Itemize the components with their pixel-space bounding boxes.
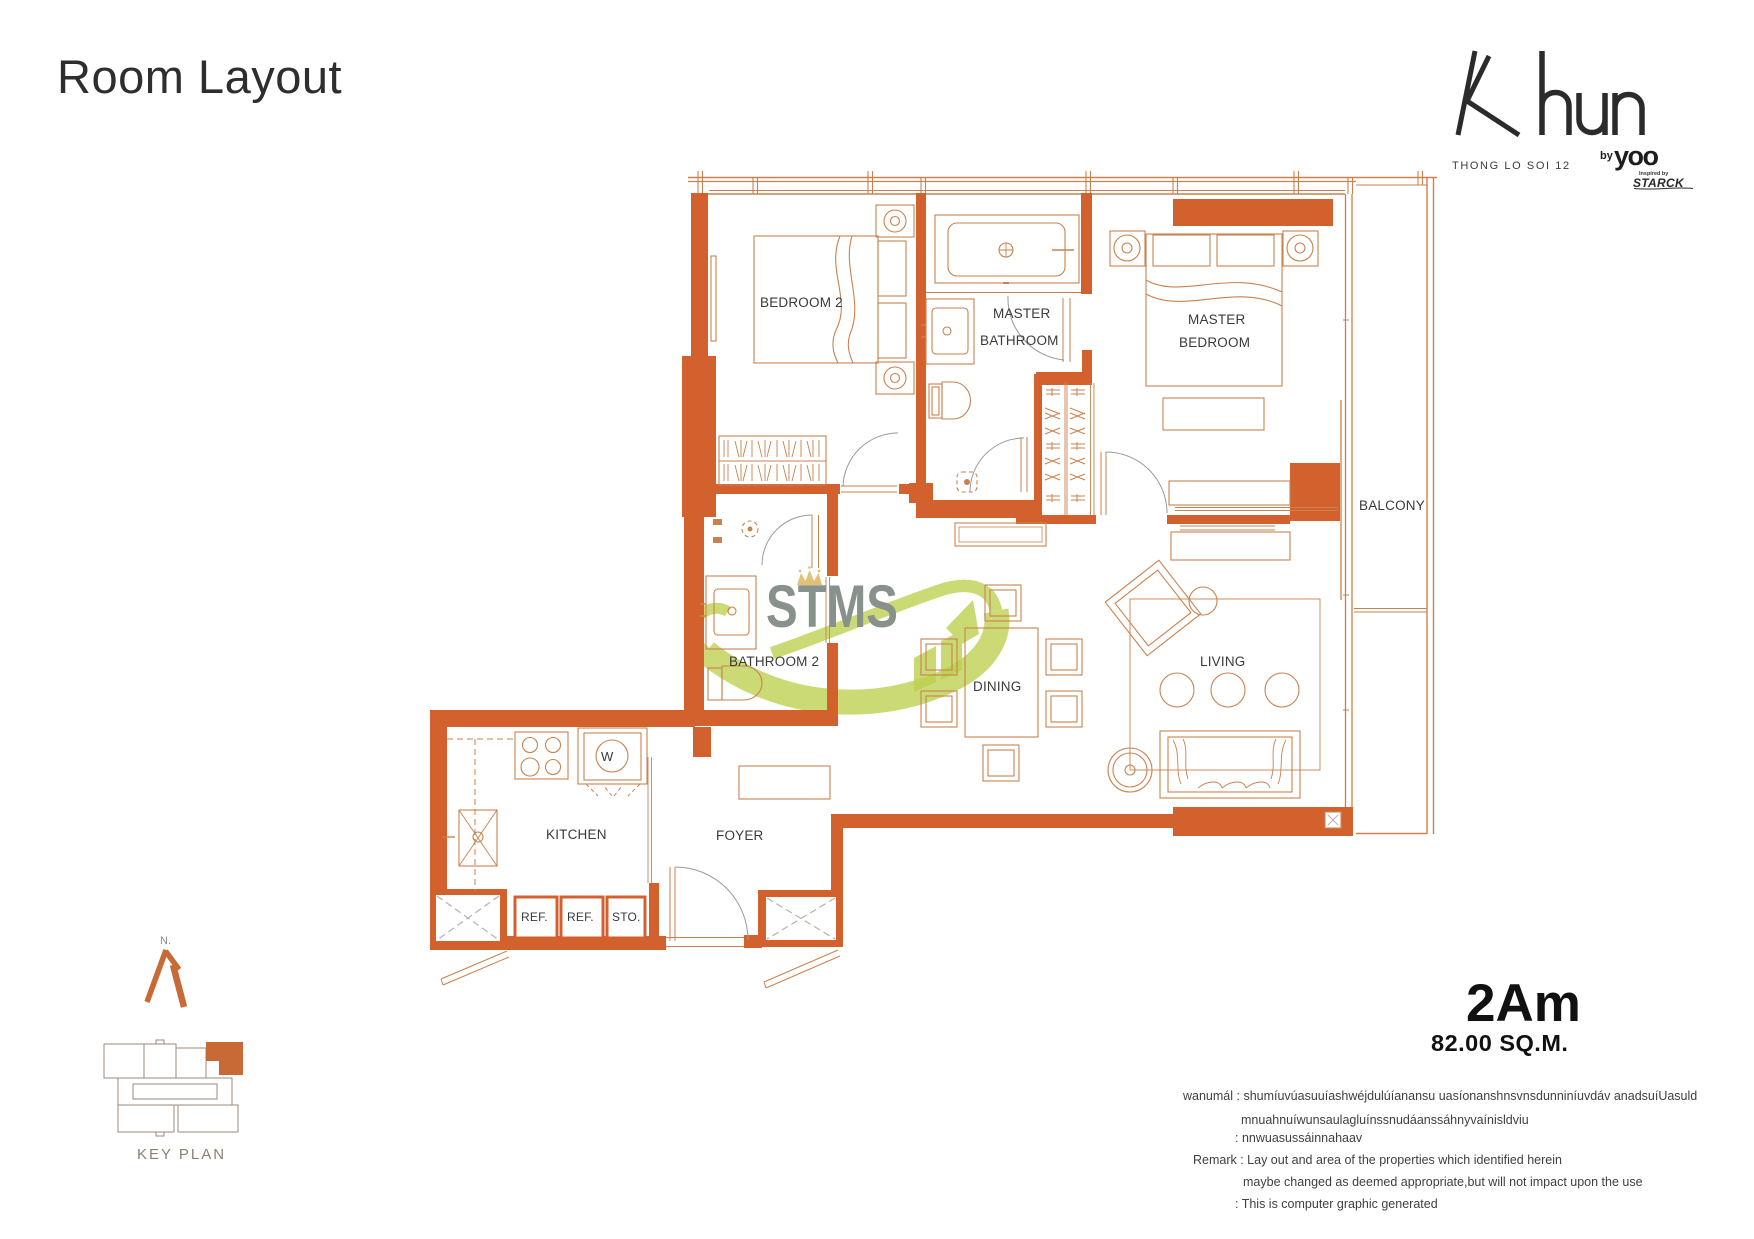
svg-text:BALCONY: BALCONY bbox=[1359, 498, 1425, 513]
svg-text:: nnwuasussáinnahaav: : nnwuasussáinnahaav bbox=[1235, 1131, 1363, 1145]
svg-text:THONG LO SOI 12: THONG LO SOI 12 bbox=[1452, 160, 1571, 172]
svg-text:LIVING: LIVING bbox=[1200, 654, 1245, 669]
svg-text:KEY PLAN: KEY PLAN bbox=[137, 1146, 226, 1163]
svg-text:Remark : Lay out and area of t: Remark : Lay out and area of the propert… bbox=[1193, 1153, 1562, 1167]
svg-text:wanumál : shumíuvúasuuíashwéjd: wanumál : shumíuvúasuuíashwéjdulúíanansu… bbox=[1182, 1089, 1697, 1103]
svg-text:REF.: REF. bbox=[521, 910, 548, 924]
svg-text:STO.: STO. bbox=[612, 910, 641, 924]
svg-text:N.: N. bbox=[160, 935, 171, 947]
svg-text:DINING: DINING bbox=[973, 679, 1021, 694]
svg-text:maybe changed as deemed approp: maybe changed as deemed appropriate,but … bbox=[1243, 1175, 1643, 1189]
svg-text:BATHROOM: BATHROOM bbox=[980, 333, 1059, 348]
svg-text:BEDROOM: BEDROOM bbox=[1179, 335, 1250, 350]
svg-text:yoo: yoo bbox=[1614, 141, 1659, 171]
svg-text:MASTER: MASTER bbox=[1188, 312, 1246, 327]
svg-text:Room Layout: Room Layout bbox=[57, 50, 342, 103]
svg-text:mnuahnuíwunsaulagluínssnudáans: mnuahnuíwunsaulagluínssnudáanssáhnyvaíni… bbox=[1241, 1113, 1529, 1127]
svg-text:FOYER: FOYER bbox=[716, 828, 764, 843]
svg-text:by: by bbox=[1600, 150, 1614, 162]
svg-text:KITCHEN: KITCHEN bbox=[546, 827, 607, 842]
svg-text:82.00 SQ.M.: 82.00 SQ.M. bbox=[1431, 1030, 1568, 1056]
svg-text:STMS: STMS bbox=[766, 573, 898, 640]
svg-text:BEDROOM 2: BEDROOM 2 bbox=[760, 295, 843, 310]
svg-text:W: W bbox=[601, 749, 614, 764]
svg-text:REF.: REF. bbox=[567, 910, 594, 924]
svg-text:: This is computer graphic gen: : This is computer graphic generated bbox=[1235, 1197, 1438, 1211]
svg-text:MASTER: MASTER bbox=[993, 306, 1051, 321]
svg-text:2Am: 2Am bbox=[1466, 974, 1581, 1033]
svg-text:BATHROOM 2: BATHROOM 2 bbox=[729, 654, 819, 669]
